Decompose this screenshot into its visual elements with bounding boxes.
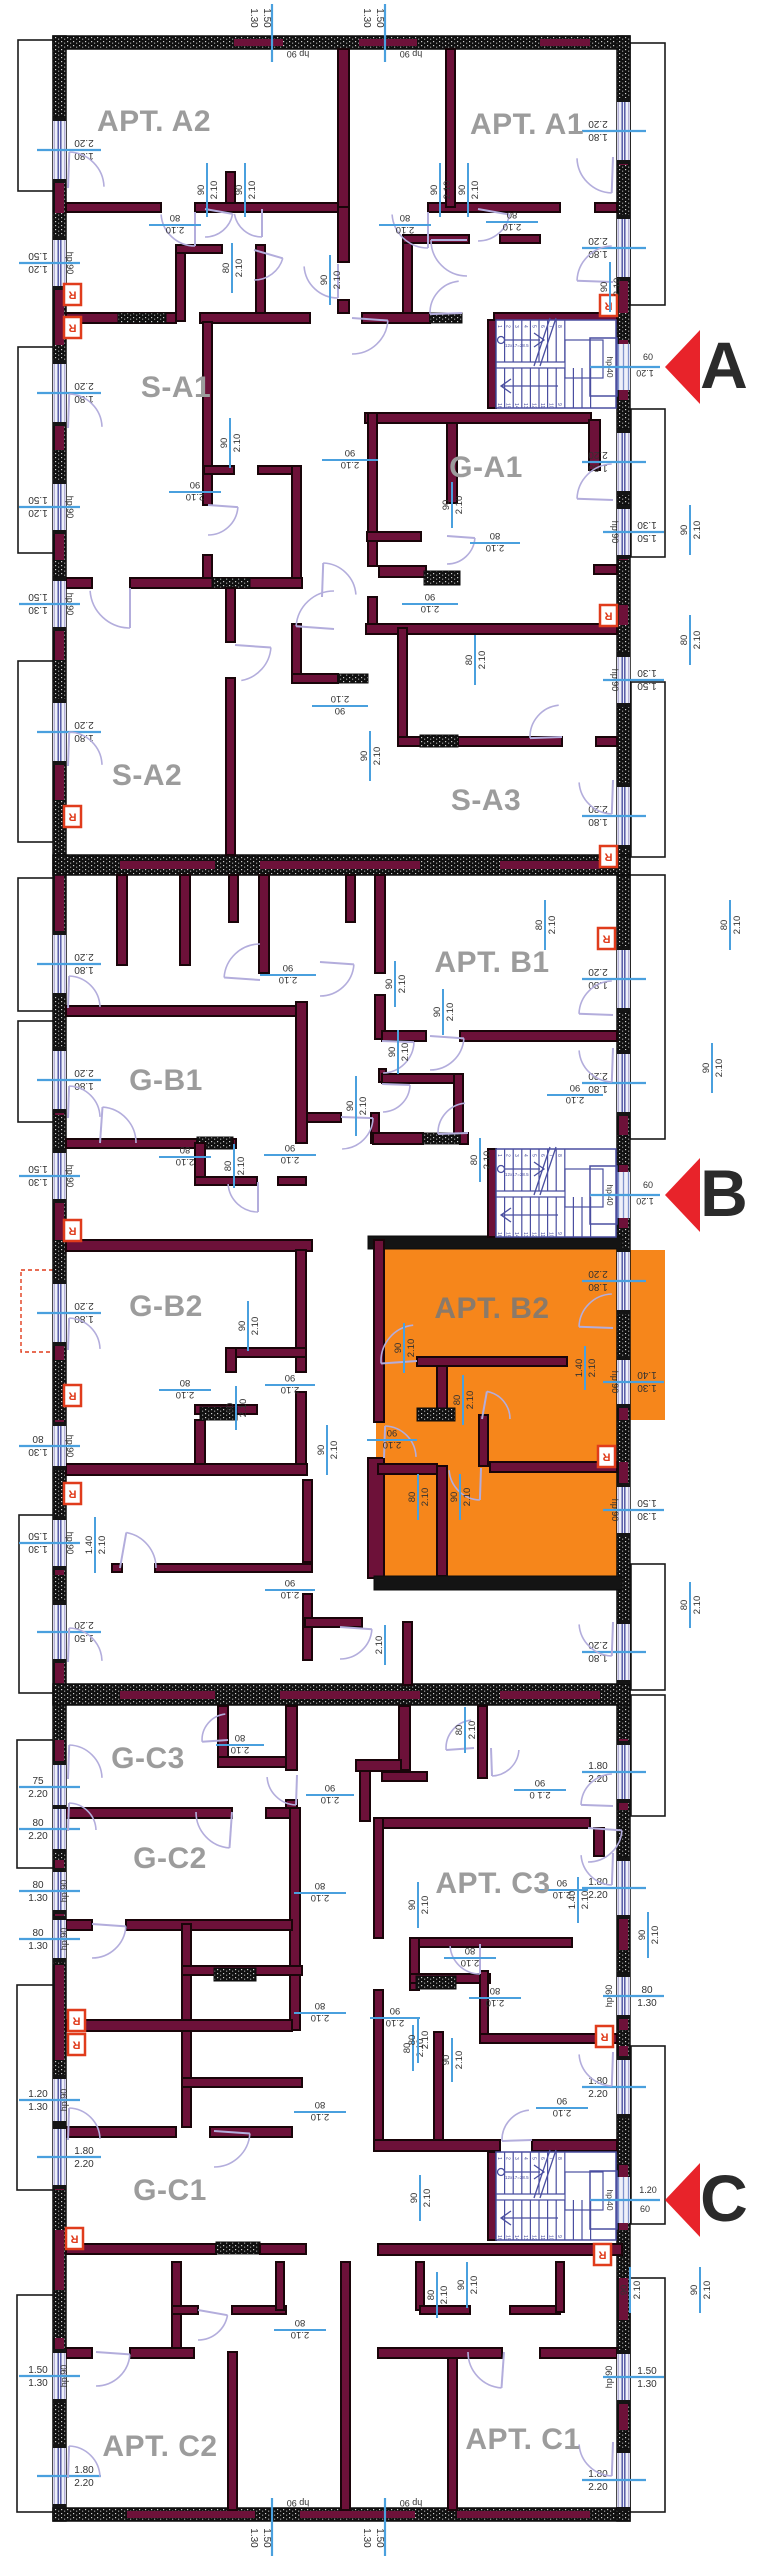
svg-text:R: R	[68, 1225, 76, 1237]
svg-text:1: 1	[496, 325, 502, 328]
svg-text:R: R	[68, 289, 76, 301]
svg-text:R: R	[604, 300, 612, 312]
svg-text:S-A2: S-A2	[112, 759, 182, 792]
svg-text:S-A3: S-A3	[451, 784, 521, 817]
svg-text:B: B	[700, 1156, 748, 1230]
svg-text:C: C	[700, 2161, 748, 2235]
svg-text:9: 9	[556, 2235, 562, 2238]
svg-text:APT. A2: APT. A2	[97, 105, 211, 138]
svg-text:R: R	[604, 610, 612, 622]
svg-text:hp 90: hp 90	[604, 1985, 614, 2008]
svg-text:R: R	[70, 2233, 78, 2245]
svg-text:hp 40: hp 40	[605, 356, 615, 378]
svg-text:R: R	[602, 1451, 610, 1463]
svg-text:1.20: 1.20	[636, 1196, 654, 1206]
svg-text:11: 11	[539, 1232, 545, 1237]
svg-text:hp 90: hp 90	[65, 1435, 75, 1458]
svg-text:hp 90: hp 90	[287, 49, 310, 59]
svg-text:8: 8	[556, 2157, 562, 2160]
svg-text:15: 15	[505, 403, 511, 409]
svg-text:7: 7	[548, 1154, 554, 1157]
svg-text:hp 90: hp 90	[59, 1880, 69, 1903]
svg-text:hp 90: hp 90	[65, 593, 75, 616]
svg-text:R: R	[68, 1390, 76, 1402]
svg-text:hp 90: hp 90	[604, 2366, 614, 2389]
svg-text:13: 13	[522, 403, 528, 409]
svg-text:9: 9	[556, 403, 562, 406]
svg-text:5: 5	[530, 325, 536, 328]
svg-text:4: 4	[522, 325, 528, 328]
svg-text:12: 12	[530, 1232, 536, 1238]
svg-text:10: 10	[548, 2235, 554, 2241]
svg-text:1.20: 1.20	[636, 368, 654, 378]
svg-text:11: 11	[539, 2235, 545, 2240]
svg-text:10: 10	[548, 403, 554, 409]
svg-text:11: 11	[539, 403, 545, 408]
svg-text:60: 60	[643, 1180, 653, 1190]
svg-text:16: 16	[496, 403, 502, 409]
svg-text:16: 16	[496, 2235, 502, 2241]
svg-text:4: 4	[522, 2157, 528, 2160]
svg-text:hp 90: hp 90	[287, 2498, 310, 2508]
svg-text:hp 90: hp 90	[65, 252, 75, 275]
svg-text:APT. C1: APT. C1	[465, 2423, 580, 2456]
svg-text:12x17=28.5: 12x17=28.5	[505, 1172, 529, 1177]
svg-text:7: 7	[548, 325, 554, 328]
svg-text:4: 4	[522, 1154, 528, 1157]
svg-text:12: 12	[530, 403, 536, 409]
svg-text:6: 6	[539, 1154, 545, 1157]
svg-text:hp 90: hp 90	[59, 2365, 69, 2388]
svg-text:G-C1: G-C1	[133, 2174, 207, 2207]
svg-text:G-C3: G-C3	[111, 1742, 185, 1775]
svg-text:5: 5	[530, 1154, 536, 1157]
svg-text:2.10: 2.10	[374, 1636, 385, 1655]
svg-text:R: R	[68, 1488, 76, 1500]
svg-text:hp 90: hp 90	[59, 1928, 69, 1951]
svg-text:R: R	[602, 933, 610, 945]
svg-text:G-A1: G-A1	[449, 451, 523, 484]
svg-text:8: 8	[556, 1154, 562, 1157]
svg-text:13: 13	[522, 1232, 528, 1238]
svg-text:R: R	[68, 811, 76, 823]
svg-text:2: 2	[505, 1154, 511, 1157]
svg-text:8: 8	[556, 325, 562, 328]
svg-text:hp 90: hp 90	[610, 1499, 620, 1522]
svg-text:12x17=28.5: 12x17=28.5	[505, 2175, 529, 2180]
svg-text:2: 2	[505, 325, 511, 328]
svg-text:1: 1	[496, 2157, 502, 2160]
svg-text:APT. B2: APT. B2	[434, 1292, 549, 1325]
svg-text:12x17=28.5: 12x17=28.5	[505, 343, 529, 348]
svg-text:G-B2: G-B2	[129, 1290, 203, 1323]
svg-text:R: R	[604, 851, 612, 863]
svg-text:R: R	[598, 2249, 606, 2261]
svg-text:60: 60	[640, 2204, 650, 2214]
svg-text:15: 15	[505, 1232, 511, 1238]
svg-text:1.20: 1.20	[639, 2185, 657, 2195]
svg-text:APT. B1: APT. B1	[434, 946, 549, 979]
svg-text:3: 3	[513, 1154, 519, 1157]
svg-text:hp 40: hp 40	[605, 2189, 615, 2211]
svg-text:7: 7	[548, 2157, 554, 2160]
svg-text:16: 16	[496, 1232, 502, 1238]
svg-text:15: 15	[505, 2235, 511, 2241]
svg-text:12: 12	[530, 2235, 536, 2241]
svg-text:hp 40: hp 40	[605, 1184, 615, 1206]
svg-text:3: 3	[513, 325, 519, 328]
svg-text:A: A	[700, 328, 748, 402]
svg-text:G-C2: G-C2	[133, 1842, 207, 1875]
svg-text:R: R	[72, 2015, 80, 2027]
svg-text:APT. C2: APT. C2	[102, 2430, 217, 2463]
svg-text:hp 90: hp 90	[59, 2089, 69, 2112]
svg-text:14: 14	[513, 2235, 519, 2241]
svg-text:R: R	[600, 2031, 608, 2043]
svg-text:hp 90: hp 90	[65, 1165, 75, 1188]
svg-text:2: 2	[505, 2157, 511, 2160]
svg-text:hp 90: hp 90	[65, 1532, 75, 1555]
svg-text:9: 9	[556, 1232, 562, 1235]
svg-text:60: 60	[643, 352, 653, 362]
svg-text:14: 14	[513, 1232, 519, 1238]
svg-text:hp 90: hp 90	[400, 2498, 423, 2508]
svg-text:S-A1: S-A1	[141, 371, 211, 404]
svg-text:hp 90: hp 90	[400, 49, 423, 59]
svg-text:APT. C3: APT. C3	[435, 1867, 550, 1900]
svg-text:hp 90: hp 90	[610, 1371, 620, 1394]
svg-text:G-B1: G-B1	[129, 1064, 203, 1097]
svg-text:3: 3	[513, 2157, 519, 2160]
svg-text:hp 90: hp 90	[610, 669, 620, 692]
svg-text:10: 10	[548, 1232, 554, 1238]
svg-text:6: 6	[539, 325, 545, 328]
svg-text:R: R	[72, 2039, 80, 2051]
svg-text:1: 1	[496, 1154, 502, 1157]
svg-text:6: 6	[539, 2157, 545, 2160]
svg-text:APT. A1: APT. A1	[470, 108, 584, 141]
svg-text:14: 14	[513, 403, 519, 409]
svg-text:13: 13	[522, 2235, 528, 2241]
svg-text:hp 90: hp 90	[610, 521, 620, 544]
svg-text:R: R	[68, 322, 76, 334]
svg-text:hp 90: hp 90	[65, 496, 75, 519]
svg-text:5: 5	[530, 2157, 536, 2160]
